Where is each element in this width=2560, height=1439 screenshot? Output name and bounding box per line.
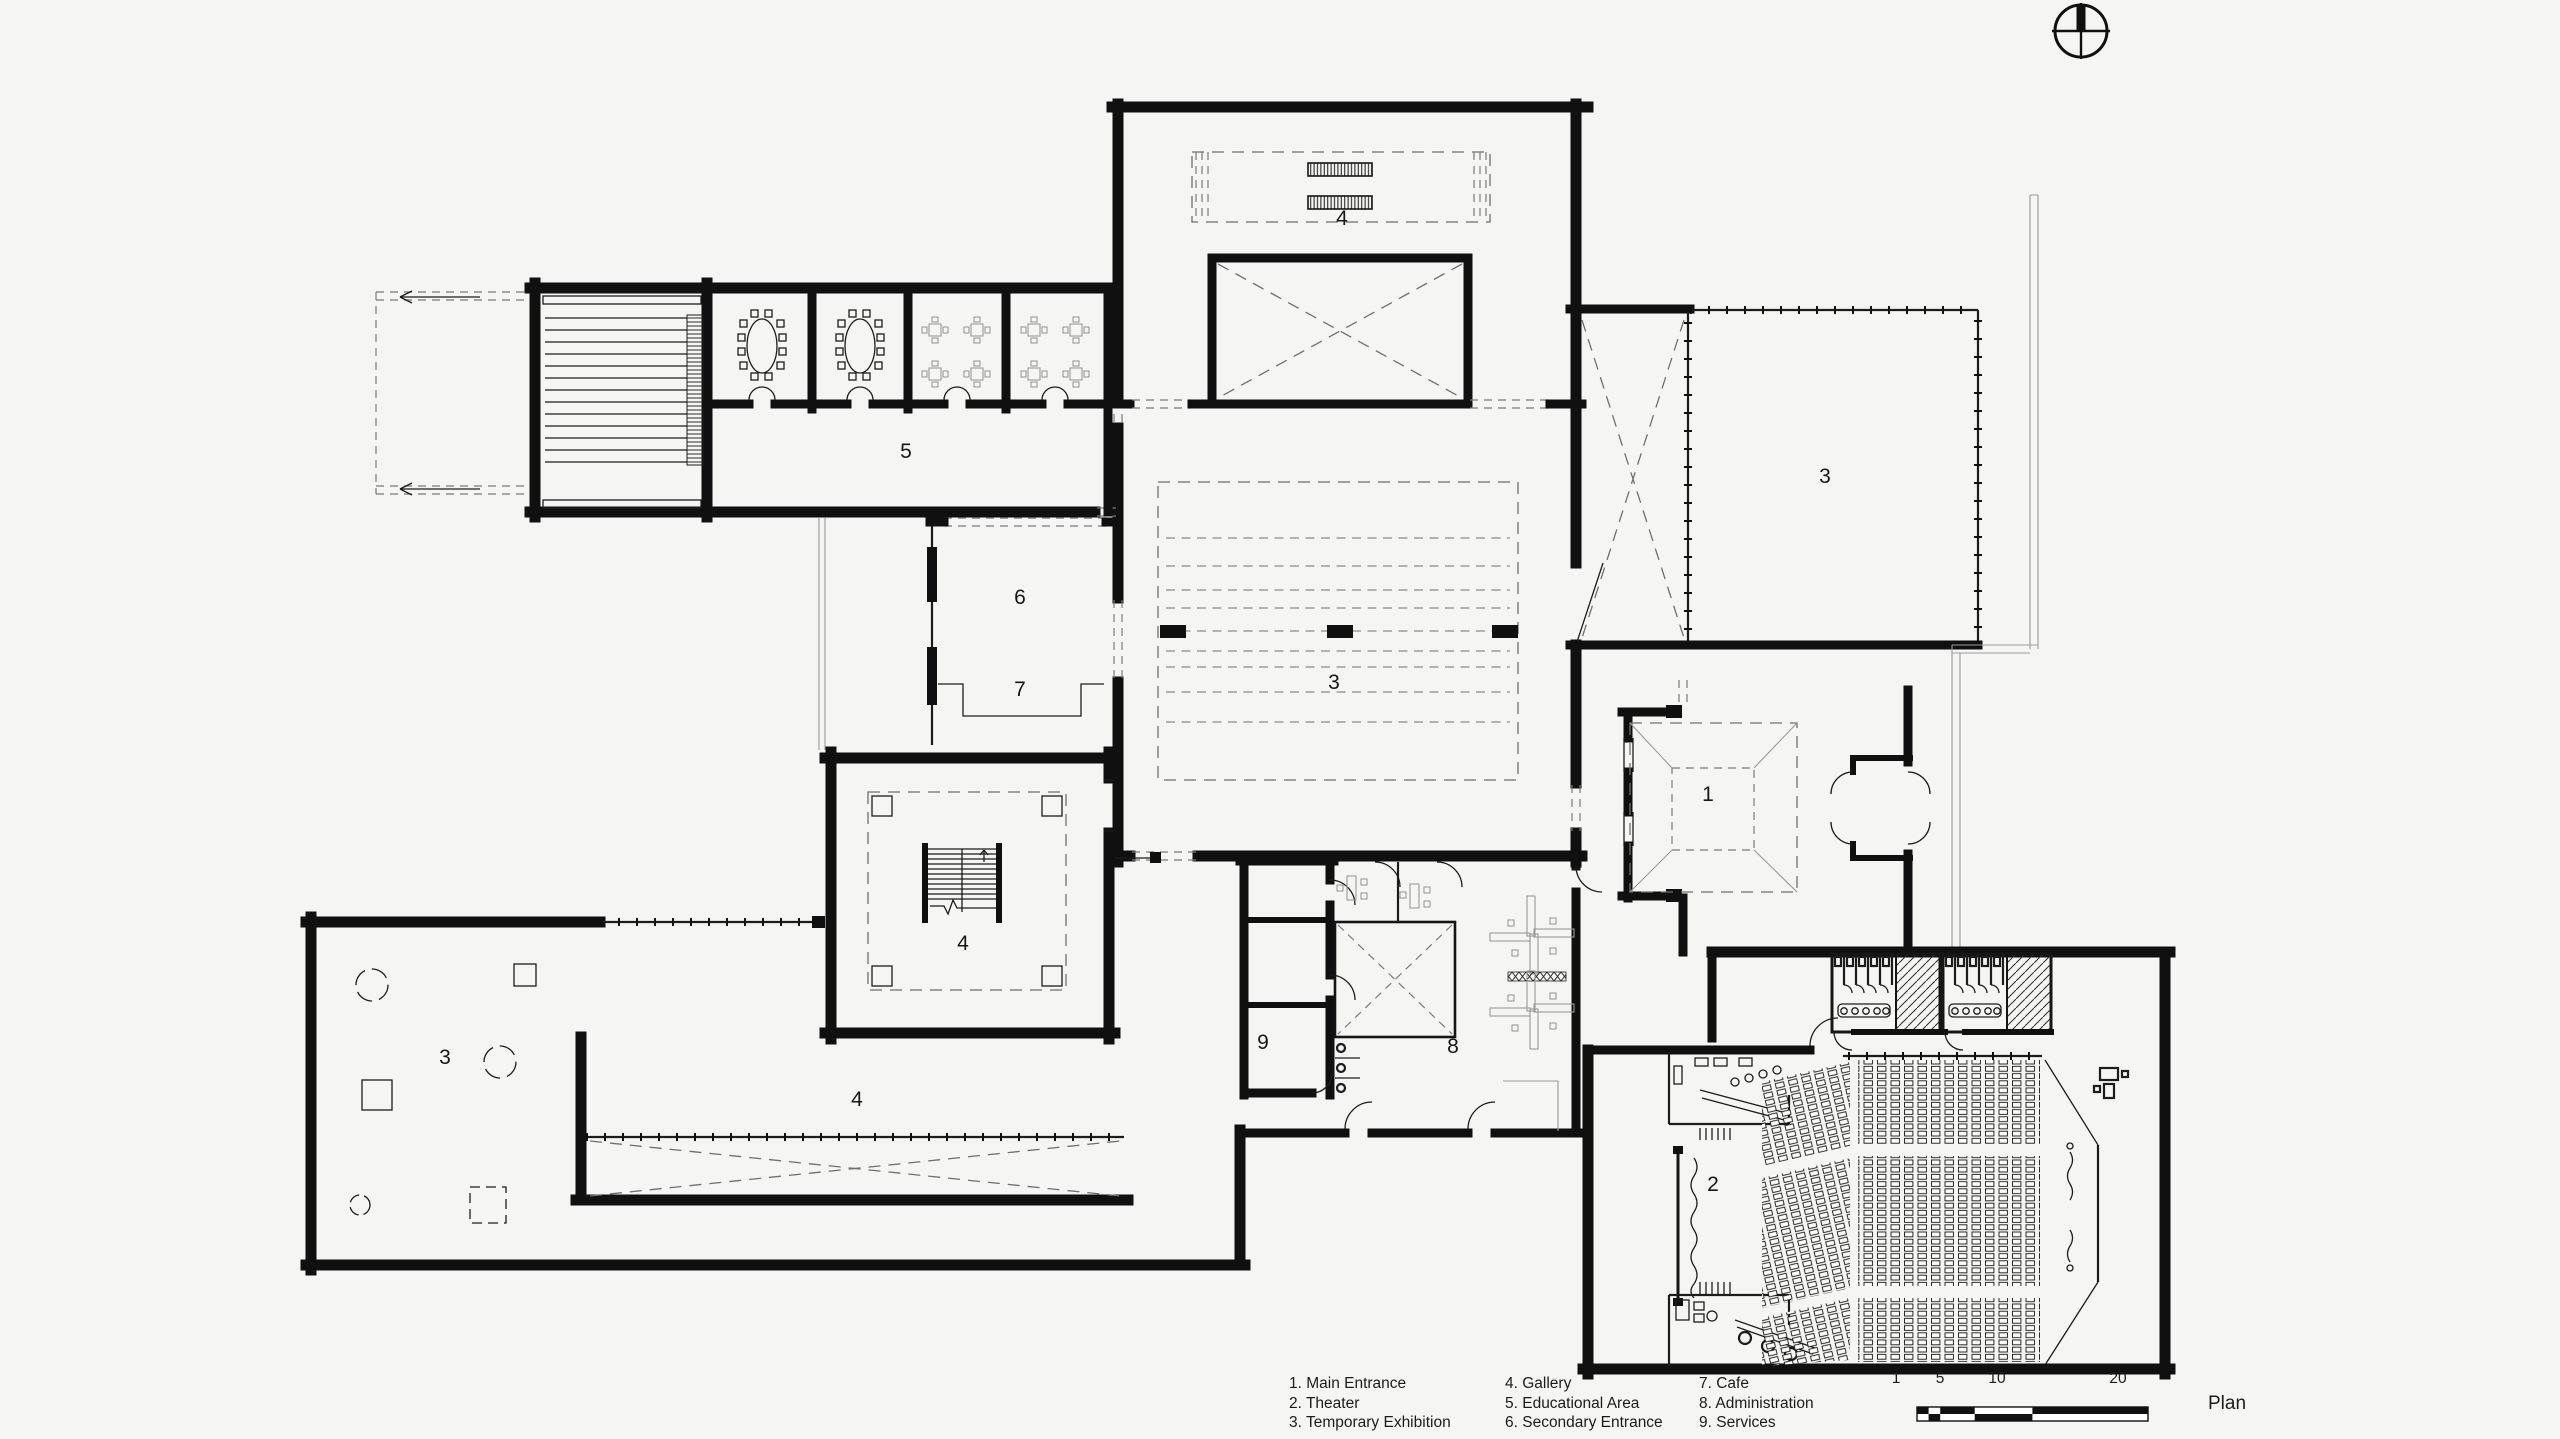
- ramp-approach: [376, 291, 530, 495]
- entrance-vestibule: [1831, 690, 1930, 952]
- gallery-block: [825, 752, 1161, 1039]
- up-arrow: [980, 850, 988, 862]
- secondary-entrance-cafe: [819, 518, 1118, 750]
- curtain-line: [1691, 1158, 1697, 1298]
- workstation-cluster: [1490, 971, 1574, 1049]
- workstation-cluster: [1490, 896, 1574, 974]
- entrance-canopy: [1630, 723, 1797, 892]
- east-wing: [1570, 309, 1978, 645]
- tech-desk: [2094, 1068, 2128, 1098]
- direction-arrow: [400, 291, 480, 303]
- mezzanine-above: [1192, 152, 1490, 222]
- side-stair: [1700, 1128, 1730, 1140]
- courtyard-glazing: [819, 518, 825, 750]
- education-wing: [376, 283, 1118, 517]
- cafe-counter: [938, 684, 1104, 716]
- north-compass-icon: [2052, 3, 2110, 59]
- main-stair: [543, 296, 703, 508]
- wc-fixtures: [1335, 1044, 1360, 1092]
- side-stair: [1700, 1282, 1730, 1294]
- storage-row: [1508, 972, 1566, 981]
- gallery-stair: [922, 843, 1002, 923]
- main-entrance: [1622, 680, 1930, 952]
- stage: [1673, 1146, 1697, 1306]
- seating: [1762, 1060, 2040, 1366]
- temporary-exhibition-zone: [1158, 482, 1518, 780]
- floor-plan-drawing: [0, 0, 2560, 1439]
- direction-arrow: [400, 483, 480, 495]
- oval-table: [738, 310, 786, 380]
- low-partition: [1503, 1081, 1558, 1131]
- display-case-x: [590, 1141, 1120, 1196]
- void-strip-x: [1582, 320, 1684, 638]
- floor-plan-sheet: 1 2 3 3 3 4 4 4 5 6 7 8 9 1. Main Entran…: [0, 0, 2560, 1439]
- stage-right-detail: [2045, 1060, 2098, 1365]
- oval-table: [836, 310, 884, 380]
- toilets: [1832, 954, 2051, 1050]
- services-admin: [1240, 858, 1602, 1133]
- exhibits: [350, 964, 536, 1223]
- north-wing: [1112, 104, 1603, 887]
- covered-walkway: [1952, 195, 2038, 950]
- scale-bar: [1917, 1407, 2148, 1421]
- theater: [1583, 952, 2170, 1374]
